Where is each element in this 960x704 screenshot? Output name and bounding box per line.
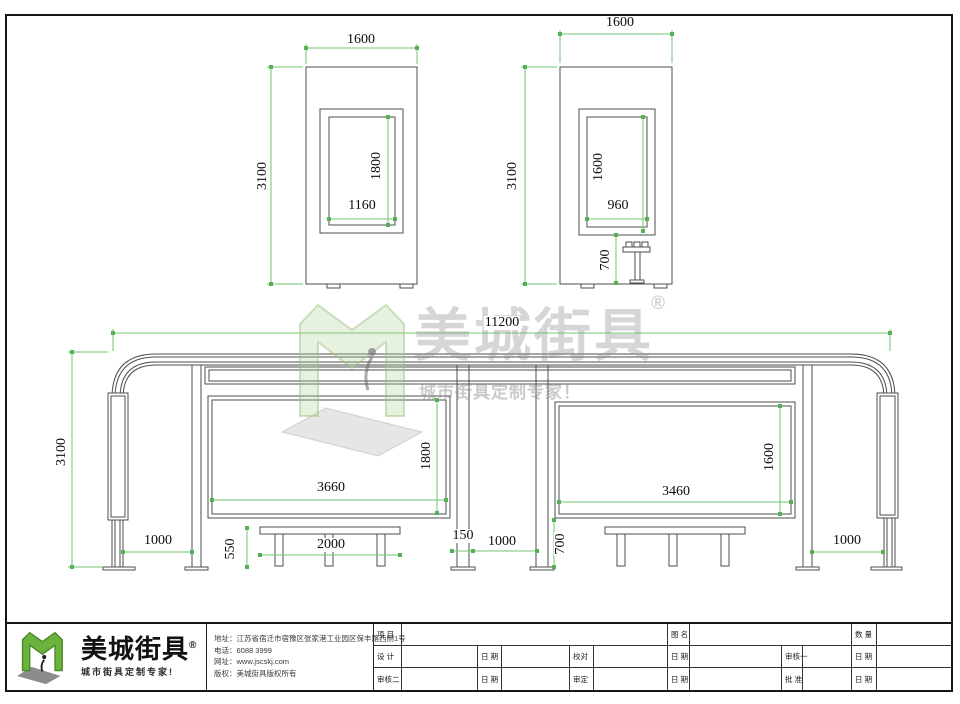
field-value	[402, 668, 478, 690]
field-proofread: 校对	[570, 646, 594, 668]
field-project: 项 目	[374, 624, 402, 646]
field-value	[402, 624, 668, 646]
field-value	[502, 668, 570, 690]
field-value	[877, 624, 951, 646]
field-drawing-name: 图 名	[668, 624, 690, 646]
field-value	[402, 646, 478, 668]
field-value	[690, 668, 782, 690]
field-reviewer-2: 审核二	[374, 668, 402, 690]
field-value	[877, 668, 951, 690]
brand-name: 美城街具®	[81, 636, 197, 663]
field-value	[690, 646, 782, 668]
field-date: 日 期	[668, 668, 690, 690]
registered-icon: ®	[189, 640, 197, 651]
company-logo: 美城街具® 城市街具定制专家!	[7, 624, 207, 690]
drawing-info-table: 项 目 图 名 数 量 设 计 日 期 校对 日 期 审核一 日 期	[374, 624, 951, 690]
field-value	[594, 646, 668, 668]
brand-tagline: 城市街具定制专家!	[81, 665, 197, 678]
field-approve-review: 审定	[570, 668, 594, 690]
logo-person-icon	[41, 655, 46, 671]
blueprint-page: 美城街具 ® 城市街具定制专家！ 1600 3100 1800 1160 160…	[0, 0, 960, 704]
company-phone: 电话：6088 3999	[214, 645, 373, 657]
sheet-border: 美城街具® 城市街具定制专家! 地址：江苏省宿迁市宿豫区张家港工业园区保丰路西侧…	[5, 14, 953, 692]
field-date: 日 期	[852, 668, 877, 690]
field-value	[690, 624, 852, 646]
field-value	[803, 646, 852, 668]
field-value	[803, 668, 852, 690]
company-info: 地址：江苏省宿迁市宿豫区张家港工业园区保丰路西侧1号 电话：6088 3999 …	[207, 624, 374, 690]
company-website: 网址：www.jscskj.com	[214, 656, 373, 668]
title-block: 美城街具® 城市街具定制专家! 地址：江苏省宿迁市宿豫区张家港工业园区保丰路西侧…	[7, 622, 951, 690]
field-value	[502, 646, 570, 668]
field-date: 日 期	[852, 646, 877, 668]
company-address: 地址：江苏省宿迁市宿豫区张家港工业园区保丰路西侧1号	[214, 633, 373, 645]
company-copyright: 版权：美城街具版权所有	[214, 668, 373, 680]
field-approval: 批 准	[782, 668, 803, 690]
field-design: 设 计	[374, 646, 402, 668]
field-date: 日 期	[668, 646, 690, 668]
field-value	[594, 668, 668, 690]
field-reviewer-1: 审核一	[782, 646, 803, 668]
field-date: 日 期	[478, 646, 502, 668]
company-logo-icon	[17, 629, 75, 685]
field-date: 日 期	[478, 668, 502, 690]
field-quantity: 数 量	[852, 624, 877, 646]
field-value	[877, 646, 951, 668]
